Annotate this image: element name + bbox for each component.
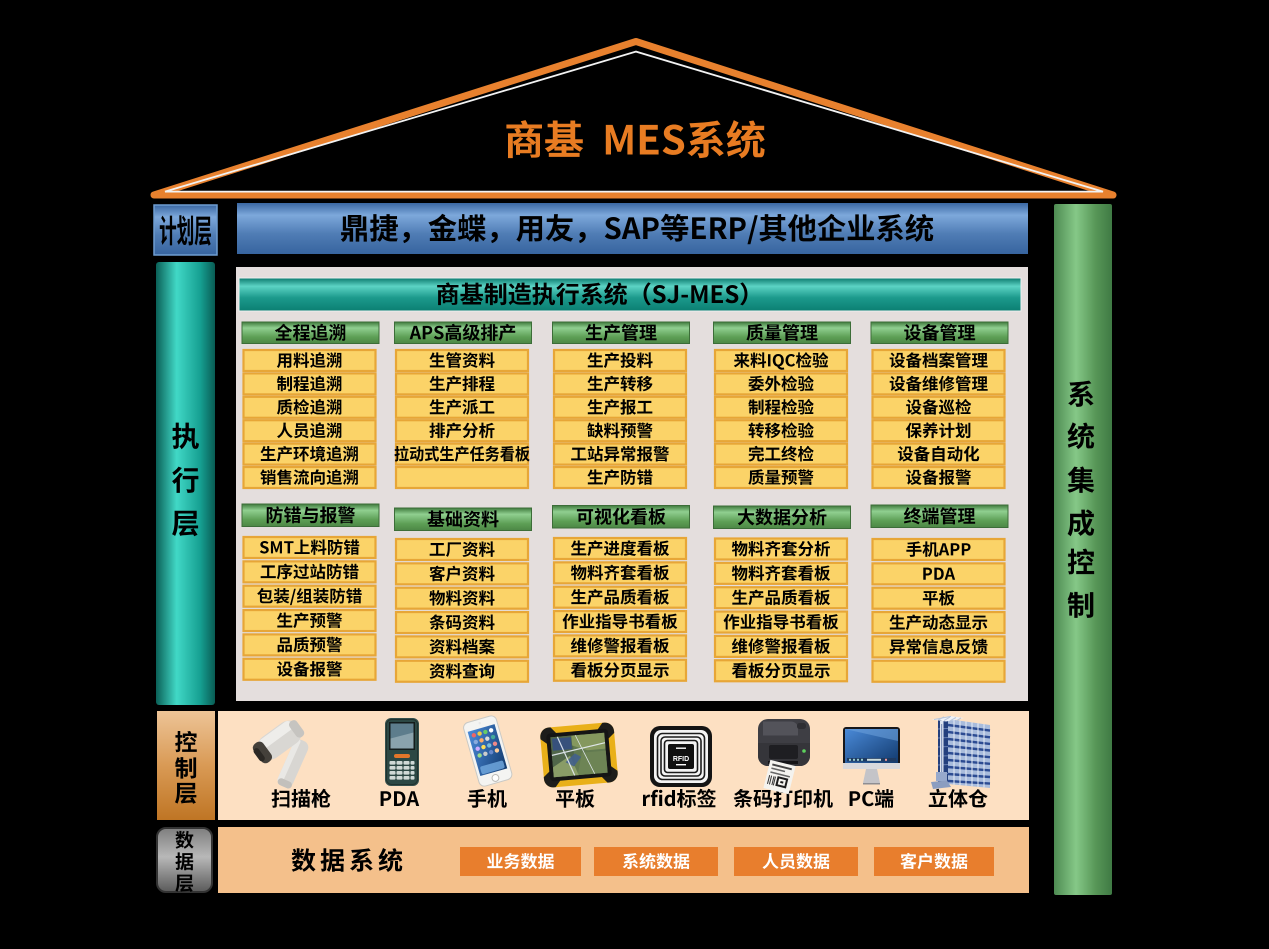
svg-text:RFID: RFID [673,756,689,763]
